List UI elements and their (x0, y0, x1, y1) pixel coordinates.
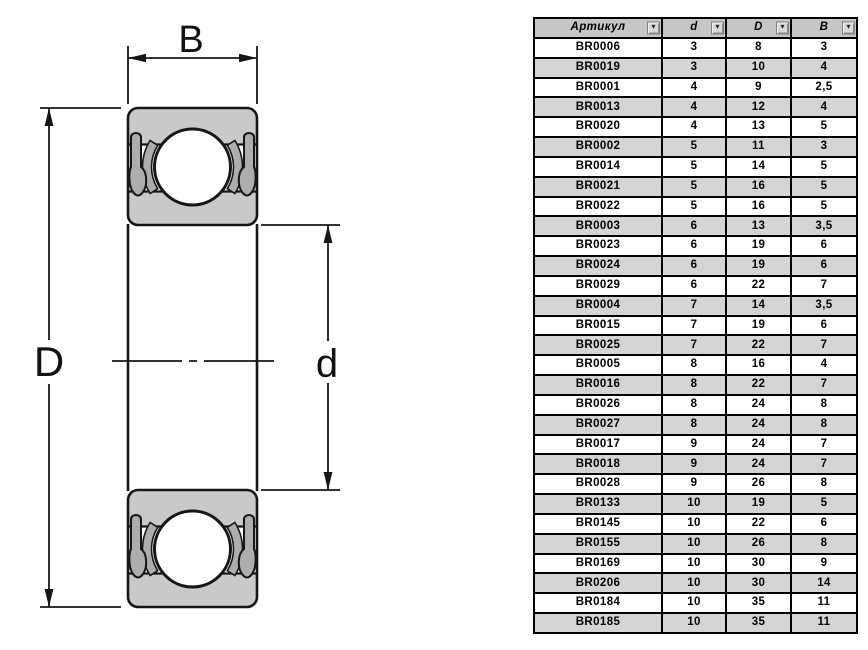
cell-article[interactable]: BR0184 (535, 594, 661, 612)
cell-article[interactable]: BR0133 (535, 495, 661, 513)
cell-D[interactable]: 10 (727, 59, 790, 77)
arrowhead-down-icon (45, 589, 54, 607)
cell-article[interactable]: BR0206 (535, 574, 661, 592)
arrowhead-right-icon (239, 54, 257, 62)
cell-D[interactable]: 24 (727, 416, 790, 434)
arrowhead-up-icon (324, 225, 333, 243)
cell-D[interactable]: 22 (727, 277, 790, 295)
cell-B[interactable]: 3,5 (792, 297, 856, 315)
cell-D[interactable]: 26 (727, 535, 790, 553)
cell-B[interactable]: 2,5 (792, 79, 856, 97)
cell-d[interactable]: 6 (663, 217, 725, 235)
column-header-label: Артикул (571, 22, 626, 34)
cell-d[interactable]: 9 (663, 436, 725, 454)
cell-d[interactable]: 5 (663, 138, 725, 156)
column-header-B[interactable]: B ▾ (792, 19, 856, 37)
cell-D[interactable]: 22 (727, 515, 790, 533)
cell-d[interactable]: 10 (663, 594, 725, 612)
cell-D[interactable]: 13 (727, 118, 790, 136)
arrowhead-left-icon (128, 54, 146, 62)
filter-dropdown-button[interactable]: ▾ (711, 21, 724, 34)
cell-d[interactable]: 7 (663, 297, 725, 315)
cell-D[interactable]: 16 (727, 178, 790, 196)
cell-D[interactable]: 22 (727, 336, 790, 354)
cell-B[interactable]: 4 (792, 356, 856, 374)
cell-B[interactable]: 7 (792, 376, 856, 394)
cell-D[interactable]: 16 (727, 198, 790, 216)
cell-d[interactable]: 10 (663, 495, 725, 513)
chevron-down-icon: ▾ (846, 23, 850, 31)
cell-B[interactable]: 7 (792, 436, 856, 454)
cell-article[interactable]: BR0145 (535, 515, 661, 533)
cell-article[interactable]: BR0185 (535, 614, 661, 632)
cell-D[interactable]: 19 (727, 257, 790, 275)
cell-B[interactable]: 4 (792, 59, 856, 77)
column-header-label: d (690, 22, 697, 34)
cell-article[interactable]: BR0169 (535, 555, 661, 573)
cell-B[interactable]: 6 (792, 317, 856, 335)
cell-d[interactable]: 10 (663, 515, 725, 533)
column-header-label: D (754, 22, 763, 34)
cell-D[interactable]: 35 (727, 614, 790, 632)
cell-D[interactable]: 26 (727, 475, 790, 493)
cell-B[interactable]: 5 (792, 198, 856, 216)
cell-B[interactable]: 14 (792, 574, 856, 592)
cell-article[interactable]: BR0022 (535, 198, 661, 216)
cell-d[interactable]: 3 (663, 39, 725, 57)
cell-D[interactable]: 24 (727, 436, 790, 454)
dim-label-B: B (178, 19, 203, 61)
cell-D[interactable]: 22 (727, 376, 790, 394)
cell-article[interactable]: BR0019 (535, 59, 661, 77)
cell-B[interactable]: 9 (792, 555, 856, 573)
cell-d[interactable]: 10 (663, 535, 725, 553)
cell-d[interactable]: 6 (663, 277, 725, 295)
filter-dropdown-button[interactable]: ▾ (842, 21, 855, 34)
cell-article[interactable]: BR0155 (535, 535, 661, 553)
cell-article[interactable]: BR0013 (535, 98, 661, 116)
column-header-D[interactable]: D ▾ (727, 19, 790, 37)
cell-article[interactable]: BR0002 (535, 138, 661, 156)
cell-d[interactable]: 10 (663, 574, 725, 592)
cell-B[interactable]: 7 (792, 336, 856, 354)
dim-label-d: d (316, 342, 338, 386)
cell-D[interactable]: 24 (727, 396, 790, 414)
cell-B[interactable]: 7 (792, 455, 856, 473)
cell-article[interactable]: BR0029 (535, 277, 661, 295)
cell-D[interactable]: 19 (727, 495, 790, 513)
chevron-down-icon: ▾ (780, 23, 784, 31)
cell-D[interactable]: 30 (727, 574, 790, 592)
cell-B[interactable]: 8 (792, 416, 856, 434)
cell-D[interactable]: 12 (727, 98, 790, 116)
filter-dropdown-button[interactable]: ▾ (647, 21, 660, 34)
cell-article[interactable]: BR0001 (535, 79, 661, 97)
cell-B[interactable]: 5 (792, 118, 856, 136)
cell-d[interactable]: 9 (663, 455, 725, 473)
cell-D[interactable]: 30 (727, 555, 790, 573)
cell-article[interactable]: BR0027 (535, 416, 661, 434)
cell-article[interactable]: BR0006 (535, 39, 661, 57)
cell-d[interactable]: 5 (663, 158, 725, 176)
cell-D[interactable]: 16 (727, 356, 790, 374)
cell-article[interactable]: BR0020 (535, 118, 661, 136)
cell-article[interactable]: BR0015 (535, 317, 661, 335)
cell-B[interactable]: 6 (792, 515, 856, 533)
cell-B[interactable]: 5 (792, 178, 856, 196)
cell-d[interactable]: 7 (663, 336, 725, 354)
parts-table: Артикул ▾ d ▾ D ▾ B ▾ BR0006383BR0019310… (533, 17, 858, 634)
cell-D[interactable]: 8 (727, 39, 790, 57)
cell-B[interactable]: 11 (792, 614, 856, 632)
cell-D[interactable]: 13 (727, 217, 790, 235)
arrowhead-up-icon (45, 108, 54, 126)
dim-label-D: D (34, 338, 64, 385)
cell-d[interactable]: 5 (663, 198, 725, 216)
column-header-d[interactable]: d ▾ (663, 19, 725, 37)
arrowhead-down-icon (324, 472, 333, 490)
cell-d[interactable]: 5 (663, 178, 725, 196)
cell-d[interactable]: 3 (663, 59, 725, 77)
cell-D[interactable]: 14 (727, 297, 790, 315)
bearing-section-bottom (128, 490, 257, 607)
cell-D[interactable]: 9 (727, 79, 790, 97)
cell-d[interactable]: 4 (663, 98, 725, 116)
column-header-article[interactable]: Артикул ▾ (535, 19, 661, 37)
cell-d[interactable]: 6 (663, 237, 725, 255)
page: B D d Артикул ▾ d (0, 0, 868, 650)
cell-D[interactable]: 14 (727, 158, 790, 176)
cell-article[interactable]: BR0025 (535, 336, 661, 354)
cell-d[interactable]: 9 (663, 475, 725, 493)
cell-B[interactable]: 8 (792, 535, 856, 553)
cell-B[interactable]: 3 (792, 39, 856, 57)
cell-d[interactable]: 7 (663, 317, 725, 335)
cell-article[interactable]: BR0004 (535, 297, 661, 315)
cell-article[interactable]: BR0021 (535, 178, 661, 196)
cell-B[interactable]: 5 (792, 495, 856, 513)
bearing-diagram: B D d (0, 0, 530, 650)
cell-article[interactable]: BR0023 (535, 237, 661, 255)
cell-article[interactable]: BR0014 (535, 158, 661, 176)
cell-B[interactable]: 4 (792, 98, 856, 116)
cell-D[interactable]: 24 (727, 455, 790, 473)
bearing-section-top (128, 108, 257, 225)
cell-article[interactable]: BR0028 (535, 475, 661, 493)
cell-B[interactable]: 6 (792, 257, 856, 275)
cell-B[interactable]: 3,5 (792, 217, 856, 235)
chevron-down-icon: ▾ (715, 23, 719, 31)
cell-d[interactable]: 4 (663, 118, 725, 136)
cell-D[interactable]: 19 (727, 317, 790, 335)
cell-D[interactable]: 11 (727, 138, 790, 156)
cell-article[interactable]: BR0026 (535, 396, 661, 414)
cell-article[interactable]: BR0017 (535, 436, 661, 454)
cell-d[interactable]: 8 (663, 376, 725, 394)
cell-d[interactable]: 6 (663, 257, 725, 275)
cell-article[interactable]: BR0016 (535, 376, 661, 394)
cell-d[interactable]: 8 (663, 356, 725, 374)
cell-article[interactable]: BR0024 (535, 257, 661, 275)
cell-d[interactable]: 8 (663, 396, 725, 414)
cell-d[interactable]: 10 (663, 614, 725, 632)
cell-article[interactable]: BR0005 (535, 356, 661, 374)
cell-B[interactable]: 6 (792, 237, 856, 255)
cell-article[interactable]: BR0018 (535, 455, 661, 473)
cell-B[interactable]: 8 (792, 396, 856, 414)
cell-D[interactable]: 19 (727, 237, 790, 255)
filter-dropdown-button[interactable]: ▾ (776, 21, 789, 34)
cell-d[interactable]: 4 (663, 79, 725, 97)
cell-B[interactable]: 11 (792, 594, 856, 612)
cell-B[interactable]: 5 (792, 158, 856, 176)
chevron-down-icon: ▾ (651, 23, 655, 31)
cell-d[interactable]: 8 (663, 416, 725, 434)
cell-D[interactable]: 35 (727, 594, 790, 612)
cell-B[interactable]: 8 (792, 475, 856, 493)
cell-d[interactable]: 10 (663, 555, 725, 573)
cell-B[interactable]: 7 (792, 277, 856, 295)
cell-B[interactable]: 3 (792, 138, 856, 156)
column-header-label: B (820, 22, 829, 34)
cell-article[interactable]: BR0003 (535, 217, 661, 235)
